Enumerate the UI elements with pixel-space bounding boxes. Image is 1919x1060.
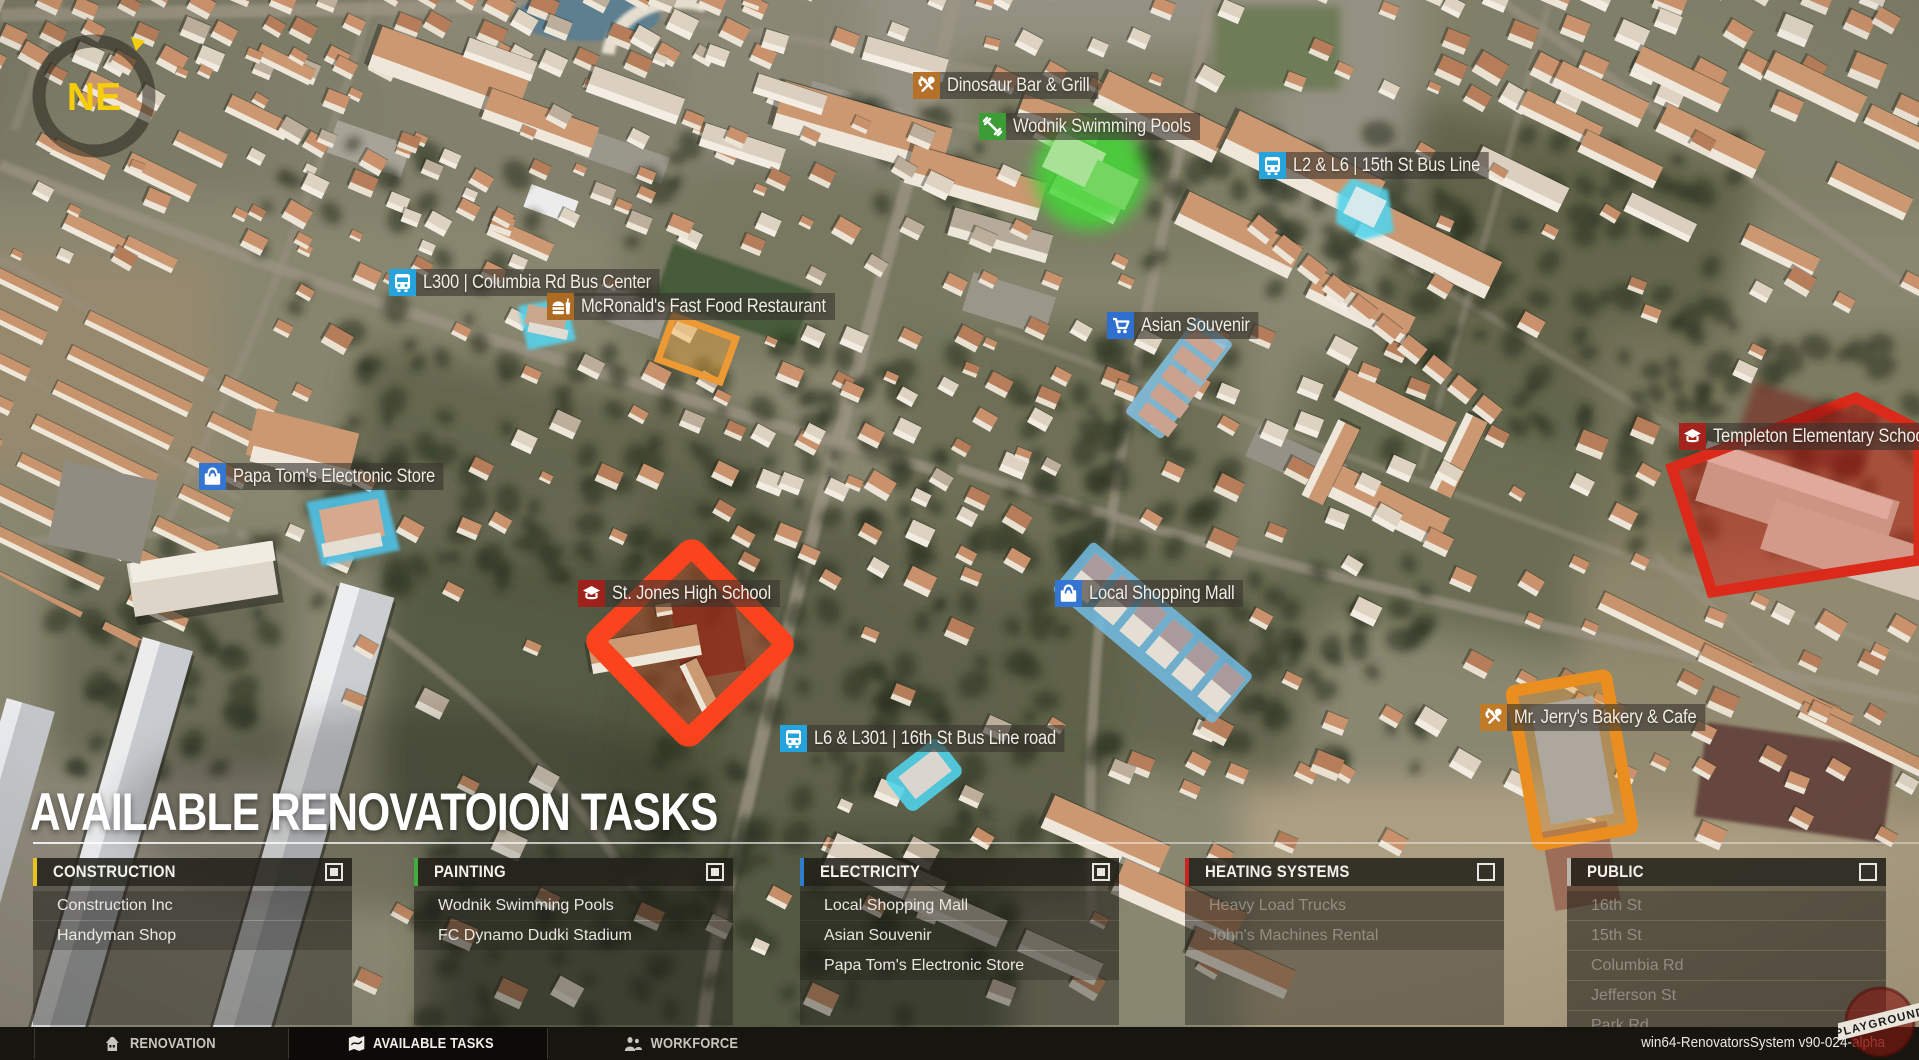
svg-text:NE: NE xyxy=(67,76,121,119)
